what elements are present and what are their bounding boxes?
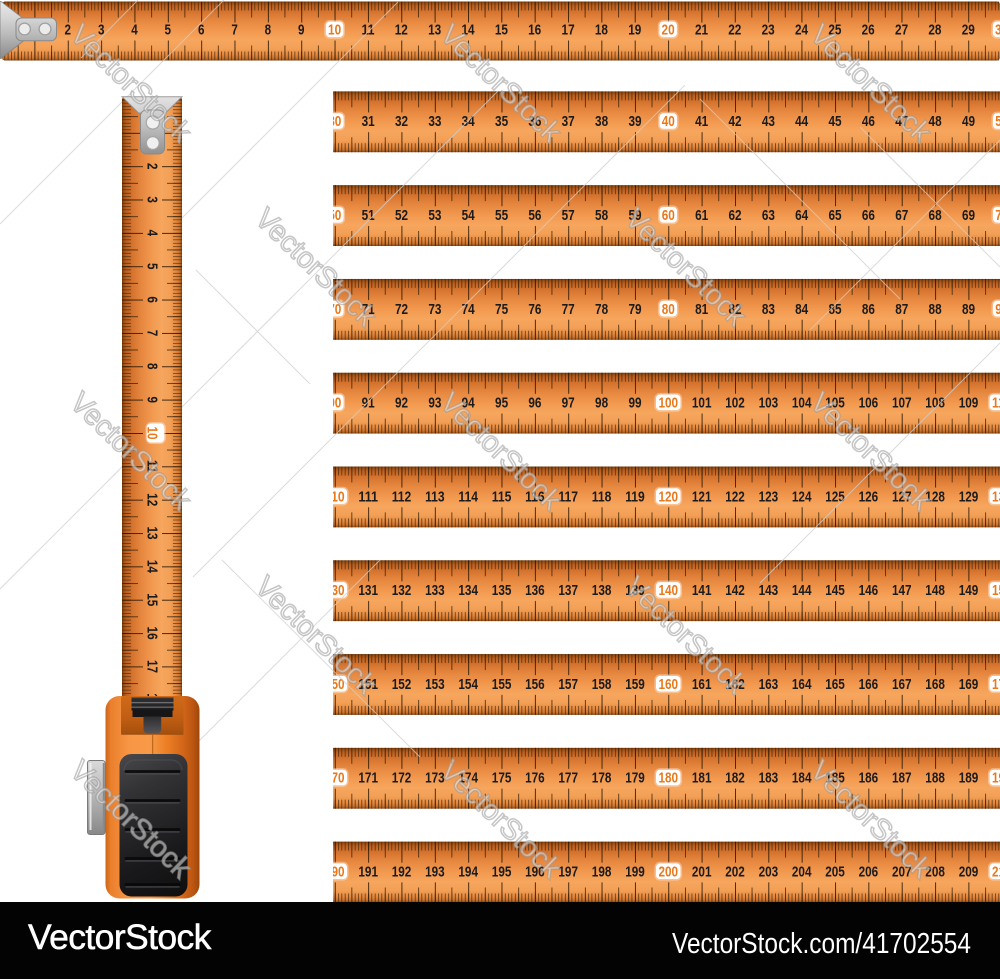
svg-text:190: 190 — [325, 864, 345, 880]
svg-text:136: 136 — [525, 583, 545, 599]
svg-text:6: 6 — [144, 296, 160, 303]
svg-text:16: 16 — [528, 23, 541, 39]
svg-text:58: 58 — [595, 208, 608, 224]
svg-text:119: 119 — [625, 489, 645, 505]
svg-text:118: 118 — [592, 489, 612, 505]
svg-text:132: 132 — [392, 583, 412, 599]
svg-text:146: 146 — [859, 583, 879, 599]
svg-text:190: 190 — [992, 771, 1000, 787]
svg-text:33: 33 — [428, 114, 441, 130]
svg-text:8: 8 — [265, 23, 272, 39]
svg-text:192: 192 — [392, 864, 412, 880]
svg-text:113: 113 — [425, 489, 445, 505]
svg-text:135: 135 — [492, 583, 512, 599]
svg-text:153: 153 — [425, 677, 445, 693]
svg-text:205: 205 — [825, 864, 845, 880]
svg-text:114: 114 — [458, 489, 478, 505]
svg-text:15: 15 — [144, 593, 160, 606]
svg-text:61: 61 — [695, 208, 708, 224]
svg-text:95: 95 — [495, 396, 508, 412]
svg-text:97: 97 — [562, 396, 575, 412]
svg-text:204: 204 — [792, 864, 812, 880]
svg-text:54: 54 — [462, 208, 475, 224]
svg-text:76: 76 — [528, 302, 541, 318]
svg-text:206: 206 — [859, 864, 879, 880]
svg-text:180: 180 — [659, 771, 679, 787]
svg-text:89: 89 — [962, 302, 975, 318]
svg-text:100: 100 — [659, 396, 679, 412]
svg-text:80: 80 — [662, 302, 675, 318]
svg-text:31: 31 — [362, 114, 375, 130]
svg-text:4: 4 — [144, 230, 160, 237]
svg-text:15: 15 — [495, 23, 508, 39]
svg-text:175: 175 — [492, 771, 512, 787]
svg-text:67: 67 — [895, 208, 908, 224]
svg-text:35: 35 — [495, 114, 508, 130]
svg-text:124: 124 — [792, 489, 812, 505]
svg-text:69: 69 — [962, 208, 975, 224]
svg-text:53: 53 — [428, 208, 441, 224]
svg-text:41: 41 — [695, 114, 708, 130]
svg-text:22: 22 — [728, 23, 741, 39]
svg-text:103: 103 — [759, 396, 779, 412]
svg-text:99: 99 — [628, 396, 641, 412]
svg-text:73: 73 — [428, 302, 441, 318]
svg-text:5: 5 — [165, 23, 172, 39]
svg-text:150: 150 — [992, 583, 1000, 599]
svg-text:167: 167 — [892, 677, 912, 693]
svg-text:30: 30 — [328, 114, 341, 130]
svg-text:52: 52 — [395, 208, 408, 224]
svg-text:199: 199 — [625, 864, 645, 880]
svg-text:144: 144 — [792, 583, 812, 599]
svg-text:57: 57 — [562, 208, 575, 224]
svg-text:63: 63 — [762, 208, 775, 224]
svg-text:39: 39 — [628, 114, 641, 130]
svg-text:200: 200 — [659, 864, 679, 880]
svg-text:7: 7 — [144, 330, 160, 337]
svg-text:28: 28 — [928, 23, 941, 39]
svg-text:122: 122 — [725, 489, 745, 505]
svg-text:181: 181 — [692, 771, 712, 787]
svg-text:12: 12 — [395, 23, 408, 39]
svg-text:107: 107 — [892, 396, 912, 412]
svg-text:68: 68 — [929, 208, 942, 224]
svg-text:155: 155 — [492, 677, 512, 693]
svg-text:87: 87 — [895, 302, 908, 318]
svg-text:133: 133 — [425, 583, 445, 599]
svg-text:189: 189 — [959, 771, 979, 787]
svg-text:201: 201 — [692, 864, 712, 880]
svg-text:143: 143 — [759, 583, 779, 599]
svg-text:194: 194 — [458, 864, 478, 880]
svg-text:96: 96 — [528, 396, 541, 412]
svg-text:49: 49 — [962, 114, 975, 130]
svg-text:3: 3 — [144, 196, 160, 203]
svg-text:92: 92 — [395, 396, 408, 412]
svg-text:176: 176 — [525, 771, 545, 787]
svg-text:160: 160 — [659, 677, 679, 693]
svg-text:38: 38 — [595, 114, 608, 130]
svg-text:125: 125 — [825, 489, 845, 505]
svg-text:55: 55 — [495, 208, 508, 224]
svg-text:10: 10 — [328, 23, 341, 39]
svg-text:145: 145 — [825, 583, 845, 599]
svg-text:16: 16 — [144, 627, 160, 640]
svg-text:88: 88 — [929, 302, 942, 318]
svg-text:9: 9 — [144, 396, 160, 403]
svg-text:141: 141 — [692, 583, 712, 599]
svg-text:62: 62 — [728, 208, 741, 224]
svg-text:165: 165 — [825, 677, 845, 693]
svg-text:98: 98 — [595, 396, 608, 412]
svg-text:152: 152 — [392, 677, 412, 693]
svg-text:74: 74 — [462, 302, 475, 318]
svg-text:64: 64 — [795, 208, 808, 224]
svg-text:21: 21 — [695, 23, 708, 39]
svg-text:8: 8 — [144, 363, 160, 370]
svg-text:191: 191 — [358, 864, 378, 880]
svg-text:195: 195 — [492, 864, 512, 880]
svg-text:130: 130 — [992, 489, 1000, 505]
svg-text:44: 44 — [795, 114, 808, 130]
svg-text:101: 101 — [692, 396, 712, 412]
svg-text:193: 193 — [425, 864, 445, 880]
svg-text:40: 40 — [662, 114, 675, 130]
svg-text:14: 14 — [144, 560, 160, 573]
svg-text:210: 210 — [992, 864, 1000, 880]
svg-text:177: 177 — [558, 771, 578, 787]
svg-text:5: 5 — [144, 263, 160, 270]
svg-text:202: 202 — [725, 864, 745, 880]
svg-text:126: 126 — [859, 489, 879, 505]
svg-text:20: 20 — [662, 23, 675, 39]
svg-text:45: 45 — [828, 114, 841, 130]
svg-text:121: 121 — [692, 489, 712, 505]
svg-text:169: 169 — [959, 677, 979, 693]
svg-text:158: 158 — [592, 677, 612, 693]
svg-text:66: 66 — [862, 208, 875, 224]
svg-text:32: 32 — [395, 114, 408, 130]
svg-text:17: 17 — [562, 23, 575, 39]
svg-text:24: 24 — [795, 23, 808, 39]
svg-text:179: 179 — [625, 771, 645, 787]
svg-text:9: 9 — [298, 23, 305, 39]
svg-text:13: 13 — [144, 526, 160, 539]
svg-text:170: 170 — [325, 771, 345, 787]
svg-text:90: 90 — [328, 396, 341, 412]
svg-text:78: 78 — [595, 302, 608, 318]
svg-text:183: 183 — [759, 771, 779, 787]
svg-text:4: 4 — [131, 23, 138, 39]
svg-text:159: 159 — [625, 677, 645, 693]
svg-text:26: 26 — [862, 23, 875, 39]
svg-text:129: 129 — [959, 489, 979, 505]
svg-text:130: 130 — [325, 583, 345, 599]
svg-text:42: 42 — [728, 114, 741, 130]
svg-text:172: 172 — [392, 771, 412, 787]
svg-text:7: 7 — [231, 23, 238, 39]
svg-text:142: 142 — [725, 583, 745, 599]
svg-text:83: 83 — [762, 302, 775, 318]
svg-text:187: 187 — [892, 771, 912, 787]
svg-text:147: 147 — [892, 583, 912, 599]
svg-text:186: 186 — [859, 771, 879, 787]
svg-text:10: 10 — [144, 426, 160, 439]
svg-text:154: 154 — [458, 677, 478, 693]
svg-text:90: 90 — [995, 302, 1000, 318]
svg-text:110: 110 — [992, 396, 1000, 412]
svg-text:102: 102 — [725, 396, 745, 412]
svg-text:46: 46 — [862, 114, 875, 130]
svg-text:77: 77 — [562, 302, 575, 318]
svg-text:2: 2 — [144, 163, 160, 170]
svg-text:19: 19 — [628, 23, 641, 39]
svg-text:60: 60 — [662, 208, 675, 224]
svg-text:171: 171 — [358, 771, 378, 787]
svg-text:86: 86 — [862, 302, 875, 318]
svg-text:112: 112 — [392, 489, 412, 505]
svg-text:134: 134 — [458, 583, 478, 599]
svg-text:166: 166 — [859, 677, 879, 693]
svg-text:109: 109 — [959, 396, 979, 412]
svg-text:79: 79 — [628, 302, 641, 318]
svg-text:84: 84 — [795, 302, 808, 318]
svg-text:29: 29 — [962, 23, 975, 39]
svg-text:106: 106 — [859, 396, 879, 412]
svg-text:50: 50 — [328, 208, 341, 224]
svg-text:108: 108 — [925, 396, 945, 412]
svg-text:137: 137 — [558, 583, 578, 599]
svg-text:65: 65 — [828, 208, 841, 224]
svg-text:156: 156 — [525, 677, 545, 693]
svg-text:131: 131 — [358, 583, 378, 599]
svg-text:72: 72 — [395, 302, 408, 318]
svg-text:56: 56 — [528, 208, 541, 224]
svg-text:168: 168 — [925, 677, 945, 693]
svg-text:198: 198 — [592, 864, 612, 880]
svg-text:203: 203 — [759, 864, 779, 880]
svg-text:149: 149 — [959, 583, 979, 599]
svg-text:163: 163 — [759, 677, 779, 693]
svg-text:182: 182 — [725, 771, 745, 787]
svg-text:178: 178 — [592, 771, 612, 787]
svg-text:VectorStock: VectorStock — [28, 917, 212, 957]
svg-text:115: 115 — [492, 489, 512, 505]
svg-text:170: 170 — [992, 677, 1000, 693]
svg-text:50: 50 — [995, 114, 1000, 130]
svg-text:188: 188 — [925, 771, 945, 787]
svg-text:148: 148 — [925, 583, 945, 599]
svg-text:157: 157 — [558, 677, 578, 693]
svg-text:27: 27 — [895, 23, 908, 39]
svg-text:23: 23 — [762, 23, 775, 39]
svg-text:17: 17 — [144, 660, 160, 673]
svg-text:75: 75 — [495, 302, 508, 318]
svg-text:30: 30 — [995, 23, 1000, 39]
svg-text:123: 123 — [759, 489, 779, 505]
svg-text:111: 111 — [358, 489, 378, 505]
svg-text:164: 164 — [792, 677, 812, 693]
svg-text:138: 138 — [592, 583, 612, 599]
svg-text:18: 18 — [595, 23, 608, 39]
svg-text:70: 70 — [995, 208, 1000, 224]
svg-text:120: 120 — [659, 489, 679, 505]
svg-text:43: 43 — [762, 114, 775, 130]
svg-text:209: 209 — [959, 864, 979, 880]
svg-text:110: 110 — [325, 489, 345, 505]
svg-text:VectorStock.com/41702554: VectorStock.com/41702554 — [672, 928, 971, 960]
